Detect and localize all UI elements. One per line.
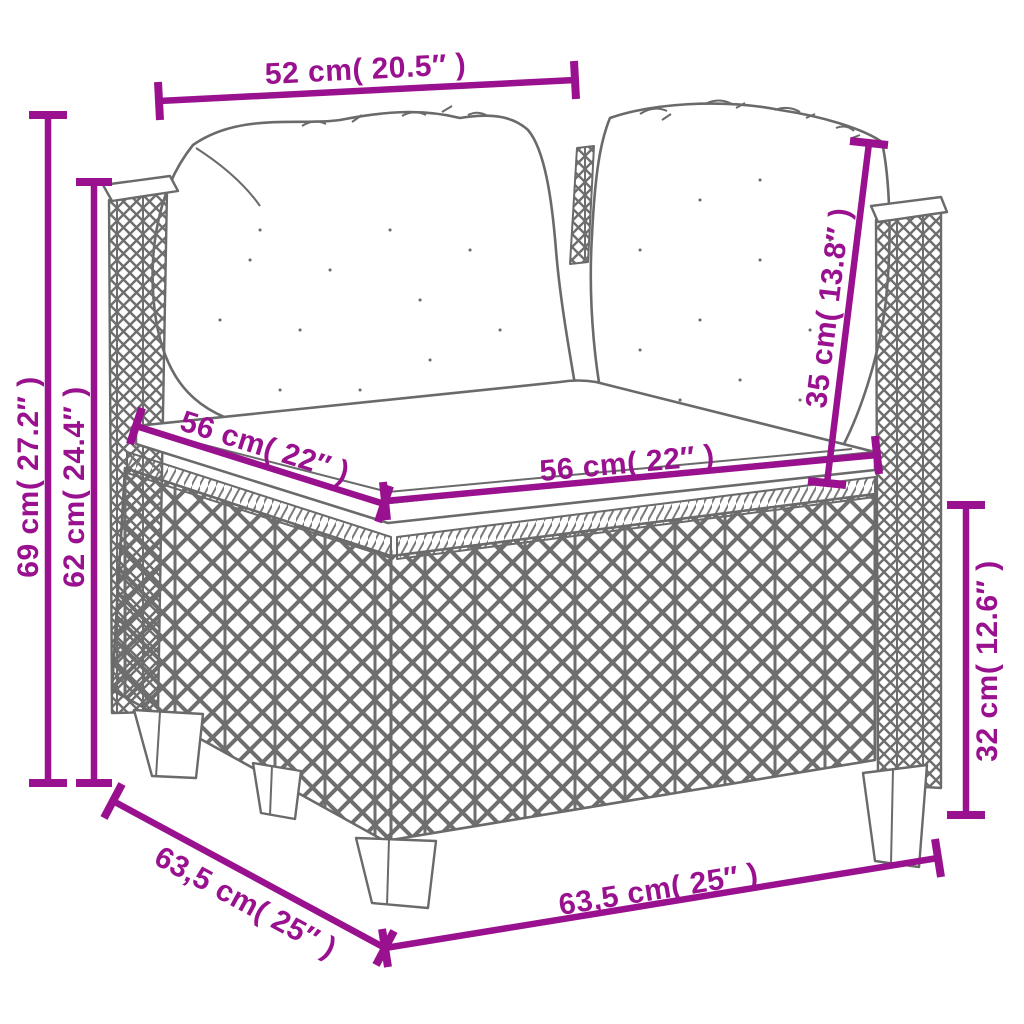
sofa-line-art [103,101,947,909]
dim-seat-width-tick-left [383,482,387,520]
leg-front-corner [356,838,436,908]
leg-middle-left [253,763,301,819]
dim-arm-height-label: 62 cm( 24.4″ ) [58,386,91,587]
dim-arm-height: 62 cm( 24.4″ ) [58,182,112,783]
dim-footprint-width-label: 63,5 cm( 25″ ) [556,857,760,922]
dim-footprint-width: 63,5 cm( 25″ ) [382,839,941,967]
dim-footprint-depth-label: 63,5 cm( 25″ ) [149,840,342,965]
dim-back-cushion-height-tick-top [850,141,888,145]
dim-top-width-tick-left [158,82,160,120]
leg-back-left [134,710,203,778]
base-right-face [391,494,875,840]
dim-back-cushion-height-tick-bottom [808,481,846,485]
dim-base-height: 32 cm( 12.6″ ) [947,505,1004,815]
diagram-canvas: 52 cm( 20.5″ ) 69 cm( 27.2″ ) 62 cm( 24.… [0,0,1024,1024]
dim-seat-width-tick-right [875,436,879,474]
dim-footprint-depth-line [113,801,385,948]
dim-footprint-width-tick-right [935,839,941,877]
dim-base-height-label: 32 cm( 12.6″ ) [971,560,1004,761]
dim-top-width-tick-right [574,61,576,99]
dim-overall-height-label: 69 cm( 27.2″ ) [12,376,45,577]
right-back-panel [876,212,941,788]
dim-top-width: 52 cm( 20.5″ ) [158,48,576,120]
leg-right [863,765,927,867]
furniture-dimension-diagram: 52 cm( 20.5″ ) 69 cm( 27.2″ ) 62 cm( 24.… [0,0,1024,1024]
dim-footprint-width-tick-left [382,929,388,967]
